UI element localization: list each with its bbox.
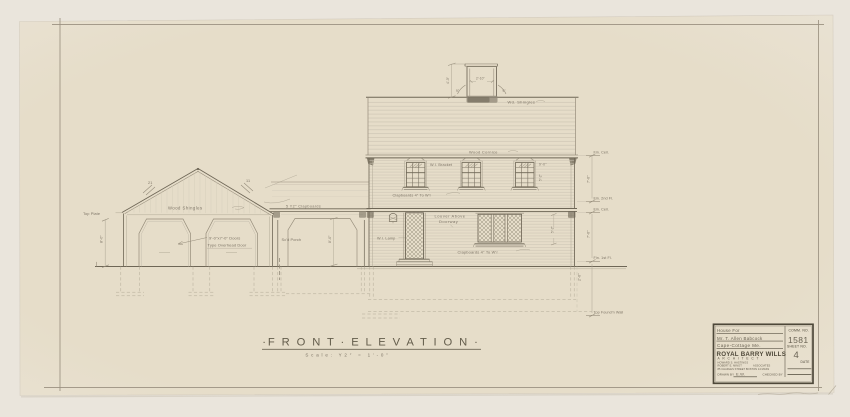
svg-text:CHECKED BY: CHECKED BY [763,372,783,376]
svg-text:Mr. T. Allen Babcock: Mr. T. Allen Babcock [717,336,763,341]
svg-text:Cape-Cottage Me.: Cape-Cottage Me. [717,343,761,348]
svg-text:Fin. 2nd Fl.: Fin. 2nd Fl. [594,196,614,200]
svg-text:W.I. Lamp: W.I. Lamp [377,236,395,240]
svg-text:Fin. Ceil.: Fin. Ceil. [594,207,610,211]
svg-text:5'-2": 5'-2" [551,226,555,233]
svg-text:8'-0": 8'-0" [328,235,332,243]
svg-text:85 CHARLES STREET BOSTON 14 MA: 85 CHARLES STREET BOSTON 14 MASS [718,367,770,371]
svg-text:ROBERT E. MINOT: ROBERT E. MINOT [718,363,743,367]
svg-text:E.W.: E.W. [736,372,745,377]
svg-text:ASSOCIATES: ASSOCIATES [753,363,771,367]
svg-text:Fin. Ceil.: Fin. Ceil. [594,151,610,155]
svg-text:4'-0": 4'-0" [446,76,450,84]
svg-text:Clapboards 4" To W'r: Clapboards 4" To W'r [393,193,432,197]
svg-text:·F R O N T · E L E V A T I O N: ·F R O N T · E L E V A T I O N · [262,337,479,349]
svg-text:Type Overhead Door: Type Overhead Door [208,243,247,248]
svg-text:DATE: DATE [801,360,810,364]
svg-text:Wd. Shingles: Wd. Shingles [508,99,536,104]
svg-text:5'-2": 5'-2" [539,174,543,181]
svg-text:7'-6": 7'-6" [587,175,591,183]
svg-text:House For: House For [717,328,740,333]
svg-text:Wood Cornice: Wood Cornice [469,150,498,155]
svg-text:2'-10": 2'-10" [476,77,485,81]
svg-text:Clapboards 4" To W'r: Clapboards 4" To W'r [458,249,499,254]
svg-text:Wood Shingles: Wood Shingles [168,205,203,210]
svg-text:21: 21 [148,181,153,185]
svg-text:4: 4 [794,350,799,361]
svg-text:Sc'd Porch: Sc'd Porch [282,237,302,242]
svg-text:9": 9" [503,89,506,93]
svg-text:9": 9" [456,89,459,93]
svg-text:W.I. Bracket: W.I. Bracket [430,163,453,167]
svg-text:SHEET NO.: SHEET NO. [787,345,807,349]
svg-text:9'-0"x7'-0" Doors: 9'-0"x7'-0" Doors [209,236,240,241]
svg-text:9'-0": 9'-0" [539,163,547,167]
svg-text:8'-0": 8'-0" [99,235,103,243]
svg-text:Top Found'n Wall: Top Found'n Wall [594,310,624,314]
svg-text:Scale: Y2″ = 1'-0″: Scale: Y2″ = 1'-0″ [305,352,390,357]
svg-text:1581: 1581 [788,335,809,345]
svg-text:2'-6": 2'-6" [578,273,582,281]
svg-text:5 Y2″ Clapboards: 5 Y2″ Clapboards [286,205,321,209]
svg-text:A R C H I T E C T: A R C H I T E C T [718,357,760,361]
svg-text:COMM. NO.: COMM. NO. [789,328,809,332]
svg-text:Louver Above: Louver Above [435,214,466,219]
svg-text:DRAWN BY: DRAWN BY [718,372,735,376]
svg-text:Fin. 1st Fl.: Fin. 1st Fl. [594,256,612,260]
svg-text:11: 11 [246,179,250,183]
svg-text:Top Plate: Top Plate [83,211,100,216]
svg-text:Doorway: Doorway [439,219,458,224]
svg-text:7'-6": 7'-6" [587,230,591,238]
